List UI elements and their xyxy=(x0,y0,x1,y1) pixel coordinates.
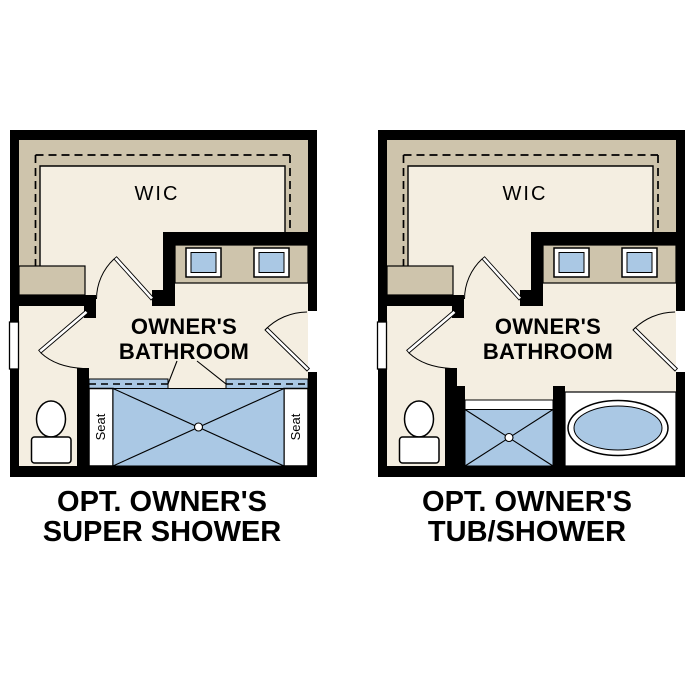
wall-vanity-top xyxy=(531,232,676,245)
sink-right-basin xyxy=(259,253,284,273)
wall-toilet-room xyxy=(445,368,457,466)
plan-title-tub-shower-line1: OPT. OWNER'S xyxy=(422,486,632,518)
plan-title-super-shower-line1: OPT. OWNER'S xyxy=(57,486,267,518)
wall-bottom xyxy=(378,466,685,477)
bathroom-room-label-line1: OWNER'S xyxy=(131,314,237,339)
toilet-bowl xyxy=(37,401,66,437)
wall-wic-bottom xyxy=(378,295,458,306)
plan-tub-shower: WIC OWNER'S BATHROOM xyxy=(378,130,686,477)
wic-room-label: WIC xyxy=(135,183,180,205)
wall-wic-bottom xyxy=(10,295,90,306)
wic-room-label: WIC xyxy=(503,183,548,205)
shower-drain xyxy=(505,434,513,442)
wic-shelf-band-right xyxy=(653,140,676,232)
bathroom-room-label-line2: BATHROOM xyxy=(119,339,249,364)
toilet-tank xyxy=(32,437,72,463)
wic-builtin-shelf xyxy=(19,266,85,295)
wall-vanity-side xyxy=(163,232,175,295)
wall-top xyxy=(378,130,685,140)
seat-label-left: Seat xyxy=(93,413,108,440)
wall-shower-left xyxy=(457,386,465,466)
wall-right-upper xyxy=(308,130,317,311)
wall-bottom xyxy=(10,466,317,477)
bathroom-room-label-line1: OWNER'S xyxy=(495,314,601,339)
sink-left-basin xyxy=(191,253,216,273)
sink-right-basin xyxy=(627,253,652,273)
wic-shelf-band-right xyxy=(285,140,308,232)
wall-vanity-side xyxy=(531,232,543,295)
window xyxy=(10,322,19,369)
sink-left-basin xyxy=(559,253,584,273)
wall-toilet-room xyxy=(77,368,89,466)
plan-title-super-shower-line2: SUPER SHOWER xyxy=(43,516,282,548)
toilet-bowl xyxy=(405,401,434,437)
wall-vanity-top xyxy=(163,232,308,245)
wic-shelf-band-top xyxy=(387,140,676,166)
tub-basin xyxy=(574,406,662,450)
wic-builtin-shelf xyxy=(387,266,453,295)
window xyxy=(378,322,387,369)
toilet-tank xyxy=(400,437,440,463)
wic-shelf-band-top xyxy=(19,140,308,166)
plan-title-tub-shower-line2: TUB/SHOWER xyxy=(428,516,626,548)
wall-right-lower xyxy=(308,372,317,477)
wall-top xyxy=(10,130,317,140)
seat-label-right: Seat xyxy=(288,413,303,440)
floor-plan-sheet: WIC OWNER'S BATHROOM Seat Seat OPT. OWNE… xyxy=(0,0,687,687)
floor-plans-svg: WIC OWNER'S BATHROOM Seat Seat OPT. OWNE… xyxy=(0,0,687,687)
wall-shower-right xyxy=(553,386,565,466)
shower-drain xyxy=(195,423,203,431)
wall-right-upper xyxy=(676,130,685,311)
shower-entry-strip xyxy=(465,400,553,410)
bathroom-room-label-line2: BATHROOM xyxy=(483,339,613,364)
wall-right-lower xyxy=(676,372,685,477)
plan-super-shower: WIC OWNER'S BATHROOM Seat Seat xyxy=(10,130,318,477)
